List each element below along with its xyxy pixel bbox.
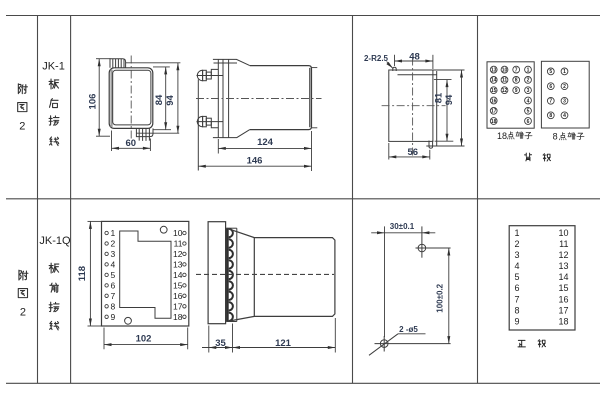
- svg-text:14: 14: [558, 272, 568, 282]
- svg-text:17: 17: [558, 305, 568, 315]
- svg-text:5: 5: [111, 270, 116, 280]
- svg-text:12: 12: [558, 250, 568, 260]
- svg-text:5: 5: [515, 272, 520, 282]
- svg-text:9: 9: [111, 312, 116, 322]
- svg-text:94: 94: [444, 94, 455, 105]
- svg-text:18: 18: [497, 131, 507, 141]
- svg-text:2: 2: [563, 84, 566, 90]
- svg-text:15: 15: [558, 283, 568, 293]
- svg-text:11: 11: [174, 239, 183, 249]
- svg-text:11: 11: [559, 239, 568, 249]
- svg-text:3: 3: [527, 88, 530, 94]
- svg-text:2: 2: [515, 239, 520, 249]
- svg-text:3: 3: [111, 249, 116, 259]
- svg-text:118: 118: [77, 266, 88, 281]
- svg-text:15: 15: [491, 88, 497, 94]
- svg-text:1: 1: [563, 69, 566, 75]
- svg-text:18: 18: [491, 119, 497, 125]
- svg-text:84: 84: [154, 94, 165, 105]
- svg-text:13: 13: [173, 259, 183, 269]
- svg-text:2: 2: [20, 307, 26, 319]
- svg-text:100±0.2: 100±0.2: [436, 283, 445, 312]
- svg-text:10: 10: [173, 228, 183, 238]
- svg-text:13: 13: [491, 67, 497, 73]
- svg-text:56: 56: [408, 147, 419, 158]
- svg-text:3: 3: [515, 250, 520, 260]
- svg-text:7: 7: [549, 99, 552, 105]
- svg-text:6: 6: [527, 119, 530, 125]
- svg-text:1: 1: [515, 228, 520, 238]
- svg-text:146: 146: [247, 156, 263, 167]
- svg-text:60: 60: [126, 138, 137, 149]
- svg-text:5: 5: [527, 109, 530, 115]
- svg-text:7: 7: [515, 67, 518, 73]
- svg-text:16: 16: [173, 291, 183, 301]
- svg-text:16: 16: [491, 98, 497, 104]
- svg-text:14: 14: [173, 270, 183, 280]
- svg-text:11: 11: [502, 78, 508, 84]
- svg-text:8: 8: [111, 301, 116, 311]
- svg-text:8: 8: [549, 113, 552, 119]
- svg-text:JK-1Q: JK-1Q: [39, 235, 71, 247]
- svg-text:4: 4: [527, 98, 530, 104]
- svg-text:6: 6: [515, 283, 520, 293]
- svg-text:17: 17: [173, 301, 183, 311]
- svg-text:2 -ø5: 2 -ø5: [399, 325, 418, 334]
- svg-text:30±0.1: 30±0.1: [390, 222, 415, 231]
- svg-text:2-R2.5: 2-R2.5: [364, 54, 389, 63]
- svg-text:81: 81: [433, 92, 444, 103]
- svg-text:2: 2: [19, 120, 25, 132]
- svg-text:121: 121: [275, 338, 292, 349]
- svg-text:7: 7: [111, 291, 116, 301]
- svg-text:106: 106: [88, 94, 99, 110]
- svg-text:9: 9: [515, 316, 520, 326]
- svg-text:5: 5: [549, 69, 552, 75]
- svg-text:9: 9: [515, 88, 518, 94]
- svg-text:35: 35: [215, 338, 226, 349]
- svg-text:102: 102: [136, 334, 152, 345]
- svg-text:1: 1: [527, 67, 530, 73]
- svg-text:6: 6: [549, 84, 552, 90]
- svg-text:8: 8: [515, 305, 520, 315]
- svg-text:4: 4: [563, 113, 566, 119]
- svg-text:18: 18: [173, 312, 183, 322]
- svg-text:8: 8: [515, 78, 518, 84]
- svg-text:2: 2: [527, 78, 530, 84]
- svg-text:10: 10: [502, 67, 508, 73]
- svg-text:2: 2: [111, 239, 116, 249]
- svg-text:17: 17: [491, 109, 497, 115]
- svg-text:48: 48: [409, 51, 420, 62]
- svg-text:94: 94: [165, 95, 176, 106]
- svg-text:7: 7: [515, 294, 520, 304]
- svg-text:1: 1: [111, 228, 116, 238]
- svg-text:4: 4: [515, 261, 520, 271]
- svg-text:3: 3: [563, 99, 566, 105]
- svg-text:6: 6: [111, 280, 116, 290]
- svg-text:124: 124: [257, 137, 274, 148]
- svg-text:12: 12: [502, 88, 508, 94]
- svg-text:15: 15: [173, 280, 183, 290]
- svg-text:18: 18: [558, 316, 568, 326]
- svg-text:JK-1: JK-1: [42, 61, 65, 73]
- svg-text:13: 13: [558, 261, 568, 271]
- svg-text:16: 16: [558, 294, 568, 304]
- svg-text:10: 10: [558, 228, 568, 238]
- svg-text:8: 8: [553, 132, 558, 142]
- svg-text:12: 12: [173, 249, 183, 259]
- svg-text:14: 14: [491, 78, 497, 84]
- svg-text:4: 4: [111, 259, 116, 269]
